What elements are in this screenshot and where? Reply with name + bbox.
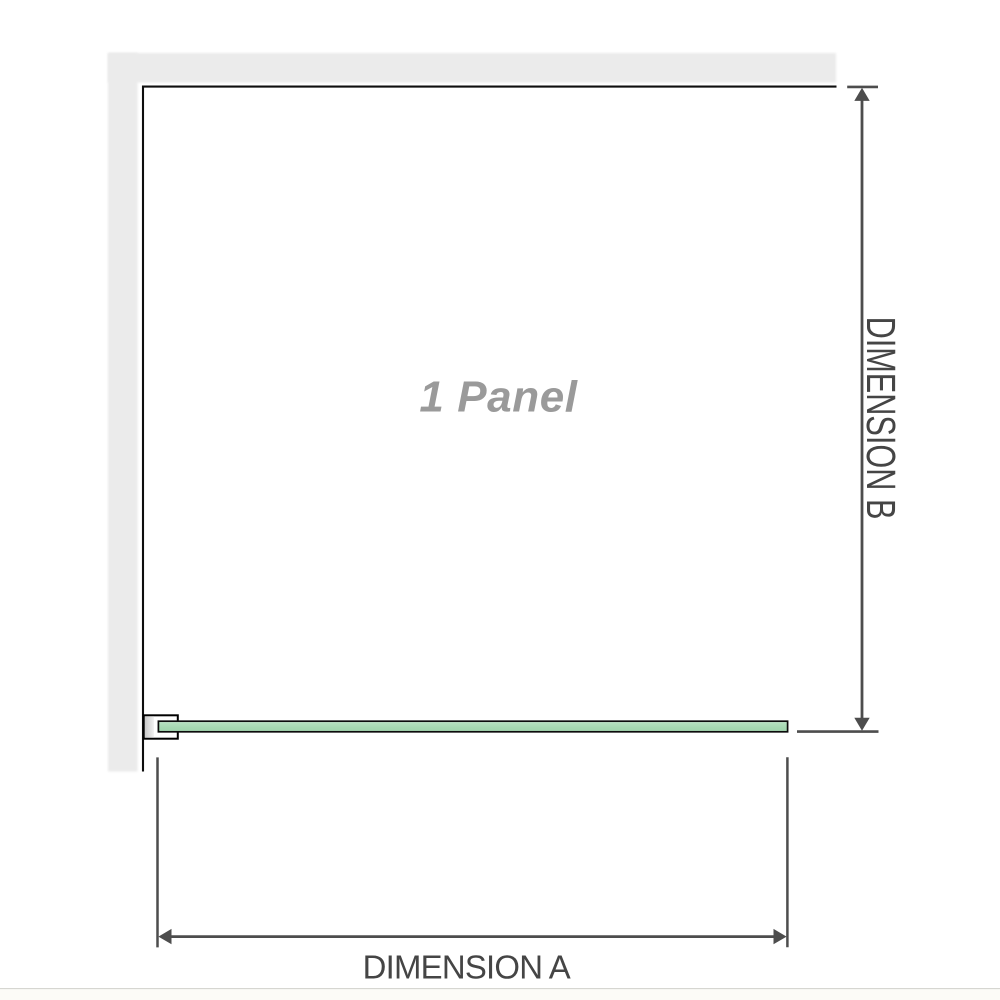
svg-text:DIMENSION A: DIMENSION A: [363, 948, 571, 985]
svg-text:1 Panel: 1 Panel: [419, 373, 577, 422]
svg-text:DIMENSION B: DIMENSION B: [858, 317, 904, 520]
